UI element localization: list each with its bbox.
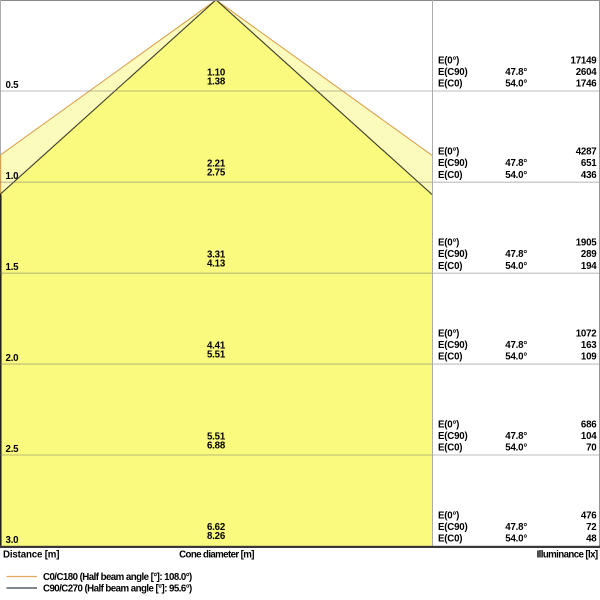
svg-text:72: 72 <box>586 522 596 533</box>
svg-text:E(C90): E(C90) <box>438 67 468 78</box>
svg-text:E(C0): E(C0) <box>438 79 462 90</box>
svg-text:289: 289 <box>581 249 597 260</box>
svg-text:E(C0): E(C0) <box>438 534 462 545</box>
svg-text:194: 194 <box>581 261 597 272</box>
svg-text:5.51: 5.51 <box>207 349 226 360</box>
svg-text:109: 109 <box>581 352 597 363</box>
svg-text:17149: 17149 <box>571 55 598 66</box>
svg-text:2604: 2604 <box>576 67 598 78</box>
svg-text:54.0°: 54.0° <box>505 79 527 90</box>
svg-text:47.8°: 47.8° <box>505 522 527 533</box>
svg-text:651: 651 <box>581 158 597 169</box>
svg-text:E(C90): E(C90) <box>438 249 468 260</box>
svg-text:E(C90): E(C90) <box>438 158 468 169</box>
svg-text:1.38: 1.38 <box>207 76 226 87</box>
svg-text:54.0°: 54.0° <box>505 352 527 363</box>
svg-text:48: 48 <box>586 534 597 545</box>
svg-text:8.26: 8.26 <box>207 531 226 542</box>
svg-text:3.0: 3.0 <box>6 535 19 546</box>
svg-text:E(C90): E(C90) <box>438 340 468 351</box>
svg-text:2.5: 2.5 <box>6 444 20 455</box>
svg-text:Distance [m]: Distance [m] <box>3 550 59 561</box>
svg-text:70: 70 <box>586 443 596 454</box>
svg-text:1905: 1905 <box>576 238 598 249</box>
svg-text:1072: 1072 <box>576 329 597 340</box>
svg-text:2.75: 2.75 <box>207 168 226 179</box>
svg-text:4.13: 4.13 <box>207 259 226 270</box>
svg-text:47.8°: 47.8° <box>505 67 527 78</box>
svg-text:54.0°: 54.0° <box>505 534 527 545</box>
svg-text:E(C0): E(C0) <box>438 261 462 272</box>
svg-text:E(0°): E(0°) <box>438 238 459 249</box>
svg-text:E(0°): E(0°) <box>438 419 459 430</box>
svg-text:54.0°: 54.0° <box>505 443 527 454</box>
svg-text:E(0°): E(0°) <box>438 55 459 66</box>
svg-text:1746: 1746 <box>576 79 598 90</box>
svg-text:476: 476 <box>581 510 597 521</box>
svg-text:E(C0): E(C0) <box>438 170 462 181</box>
svg-text:0.5: 0.5 <box>6 80 20 91</box>
svg-text:Illuminance [lx]: Illuminance [lx] <box>537 550 598 561</box>
svg-text:E(0°): E(0°) <box>438 329 459 340</box>
svg-text:E(C0): E(C0) <box>438 443 462 454</box>
svg-text:E(C90): E(C90) <box>438 522 468 533</box>
svg-text:436: 436 <box>581 170 597 181</box>
svg-text:C0/C180 (Half beam angle [°]:: C0/C180 (Half beam angle [°]: 108.0°) <box>43 572 192 583</box>
svg-text:E(C0): E(C0) <box>438 352 462 363</box>
svg-text:4287: 4287 <box>576 147 597 158</box>
svg-text:54.0°: 54.0° <box>505 261 527 272</box>
svg-text:163: 163 <box>581 340 597 351</box>
svg-text:104: 104 <box>581 431 597 442</box>
svg-text:47.8°: 47.8° <box>505 340 527 351</box>
svg-text:6.88: 6.88 <box>207 440 226 451</box>
svg-text:686: 686 <box>581 419 597 430</box>
svg-text:1.5: 1.5 <box>6 262 20 273</box>
svg-text:47.8°: 47.8° <box>505 431 527 442</box>
svg-text:54.0°: 54.0° <box>505 170 527 181</box>
svg-text:1.0: 1.0 <box>6 171 19 182</box>
svg-text:47.8°: 47.8° <box>505 249 527 260</box>
svg-text:47.8°: 47.8° <box>505 158 527 169</box>
svg-text:C90/C270 (Half beam angle [°]:: C90/C270 (Half beam angle [°]: 95.6°) <box>43 584 192 595</box>
svg-text:E(C90): E(C90) <box>438 431 468 442</box>
svg-text:E(0°): E(0°) <box>438 510 459 521</box>
svg-text:Cone diameter [m]: Cone diameter [m] <box>179 550 254 561</box>
svg-text:2.0: 2.0 <box>6 353 19 364</box>
svg-text:E(0°): E(0°) <box>438 147 459 158</box>
